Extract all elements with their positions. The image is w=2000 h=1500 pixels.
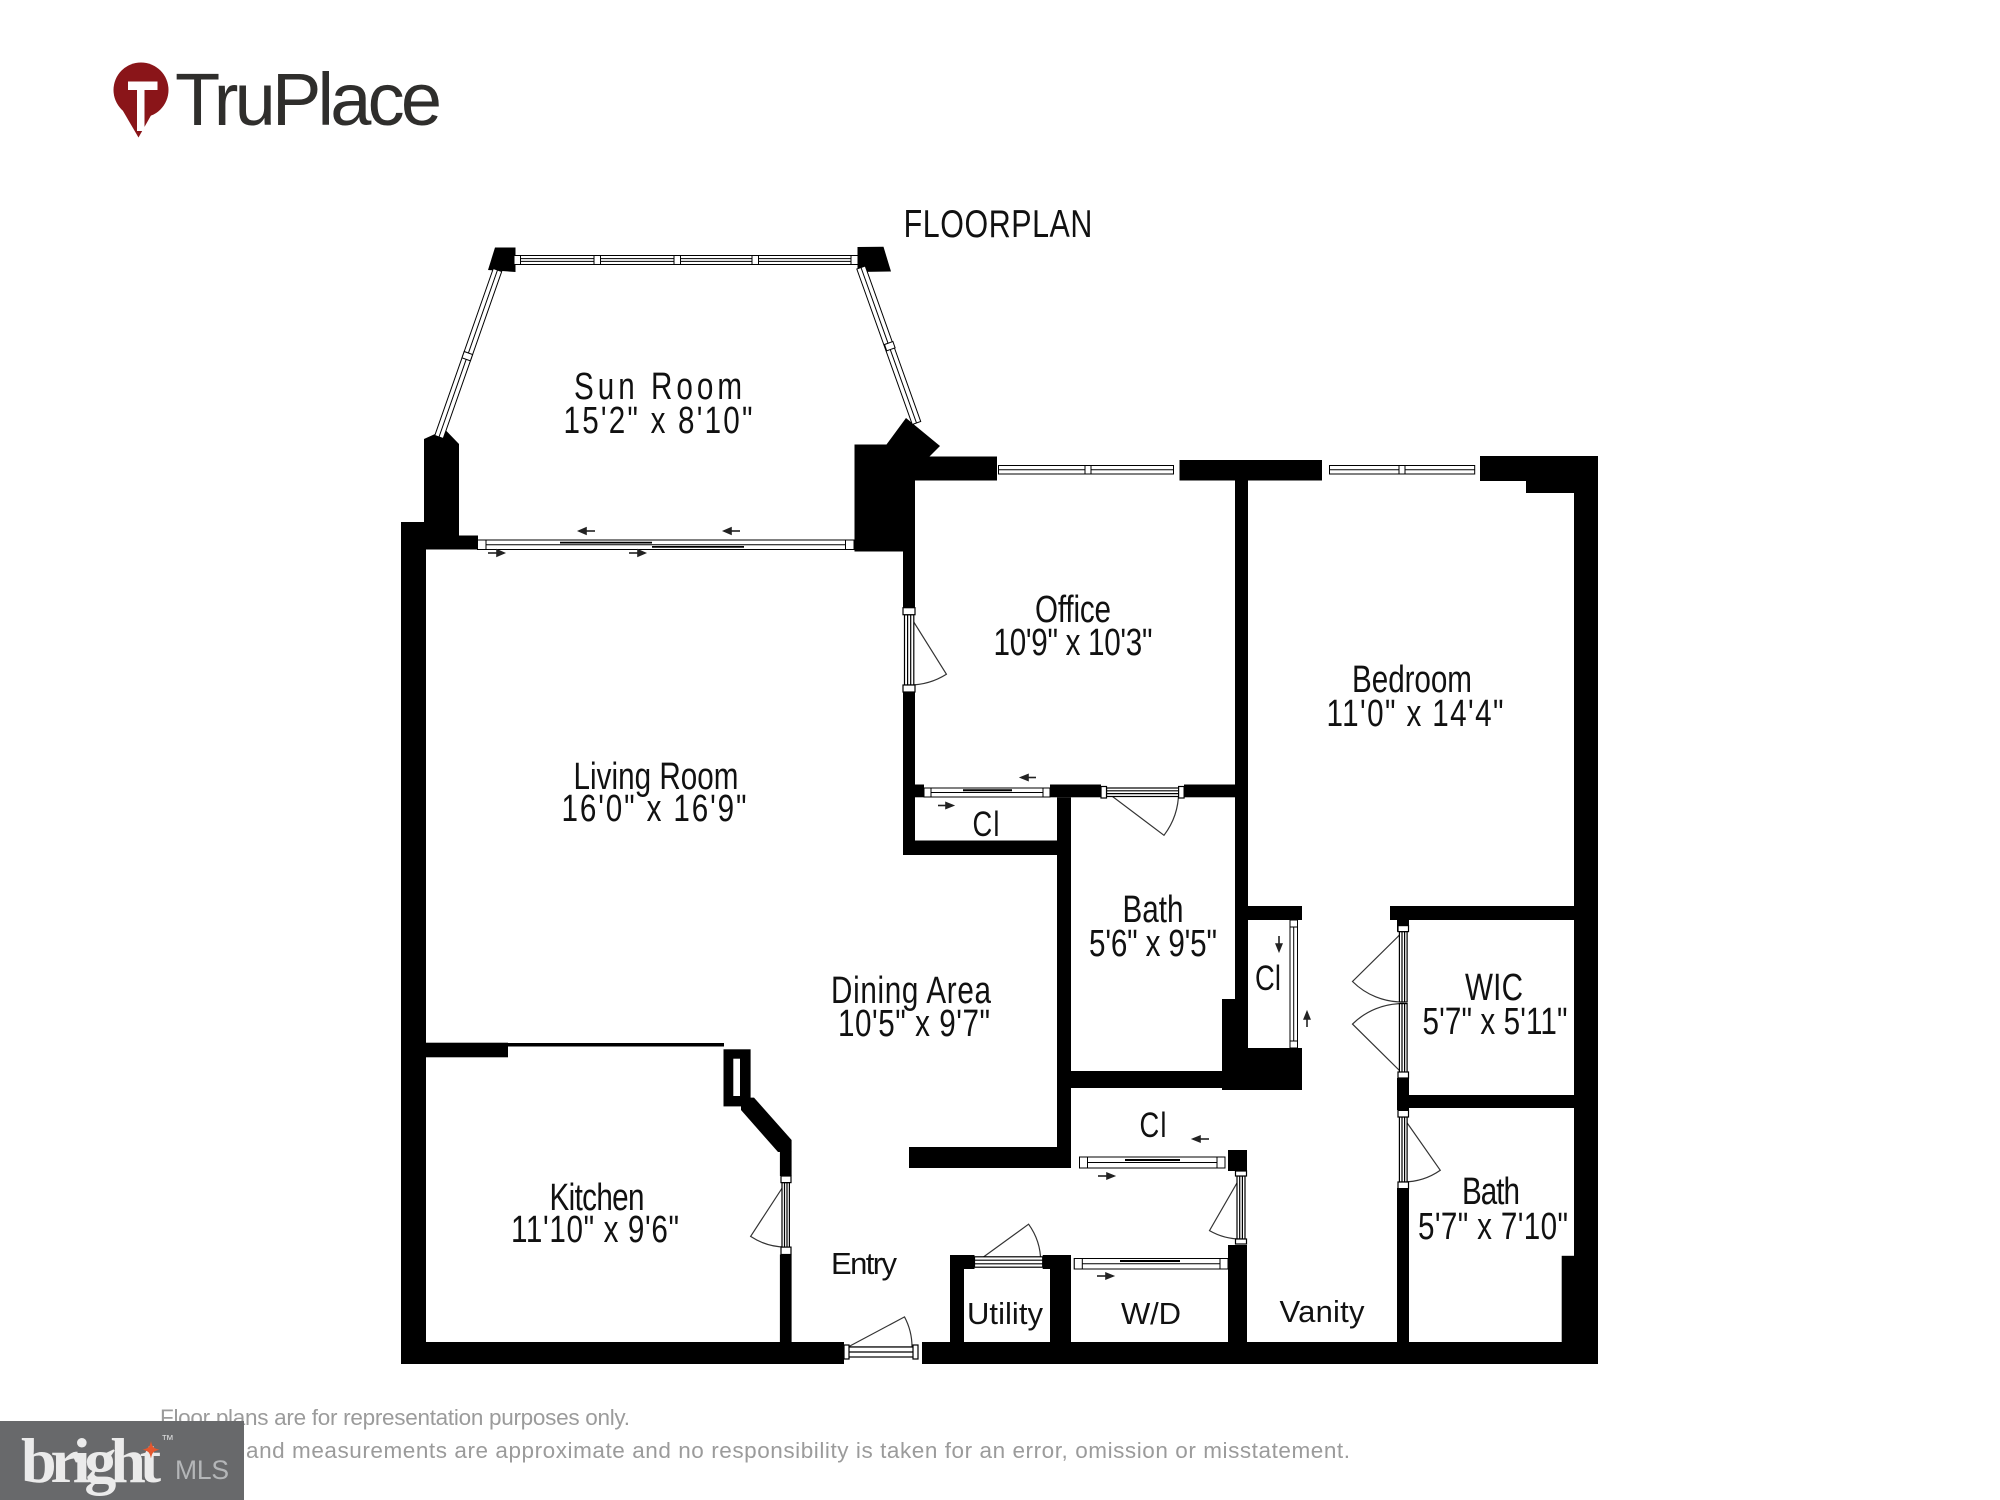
svg-text:5'7" x 5'11": 5'7" x 5'11" bbox=[1422, 1001, 1567, 1043]
svg-text:15'2" x 8'10": 15'2" x 8'10" bbox=[564, 400, 753, 442]
svg-text:Cl: Cl bbox=[1255, 959, 1281, 998]
svg-text:FLOORPLAN: FLOORPLAN bbox=[904, 202, 1093, 245]
svg-text:Utility: Utility bbox=[967, 1296, 1044, 1331]
svg-text:TruPlace: TruPlace bbox=[175, 58, 442, 141]
svg-text:™: ™ bbox=[161, 1432, 174, 1447]
svg-text:bright: bright bbox=[21, 1425, 162, 1496]
svg-text:5'7" x 7'10": 5'7" x 7'10" bbox=[1418, 1206, 1568, 1248]
svg-text:MLS: MLS bbox=[175, 1455, 229, 1485]
svg-text:11'10" x 9'6": 11'10" x 9'6" bbox=[511, 1209, 679, 1251]
svg-text:16'0" x 16'9": 16'0" x 16'9" bbox=[561, 788, 746, 830]
svg-text:and measurements are approxima: and measurements are approximate and no … bbox=[246, 1438, 1350, 1463]
svg-text:10'5" x 9'7": 10'5" x 9'7" bbox=[838, 1003, 990, 1045]
svg-text:11'0" x 14'4": 11'0" x 14'4" bbox=[1327, 693, 1504, 735]
svg-text:Vanity: Vanity bbox=[1280, 1294, 1366, 1329]
svg-text:W/D: W/D bbox=[1121, 1296, 1181, 1331]
svg-text:Cl: Cl bbox=[1140, 1106, 1167, 1145]
svg-text:Entry: Entry bbox=[831, 1246, 898, 1281]
svg-text:5'6" x 9'5": 5'6" x 9'5" bbox=[1089, 923, 1217, 965]
svg-text:10'9" x 10'3": 10'9" x 10'3" bbox=[994, 622, 1153, 664]
svg-text:Cl: Cl bbox=[973, 805, 1000, 844]
